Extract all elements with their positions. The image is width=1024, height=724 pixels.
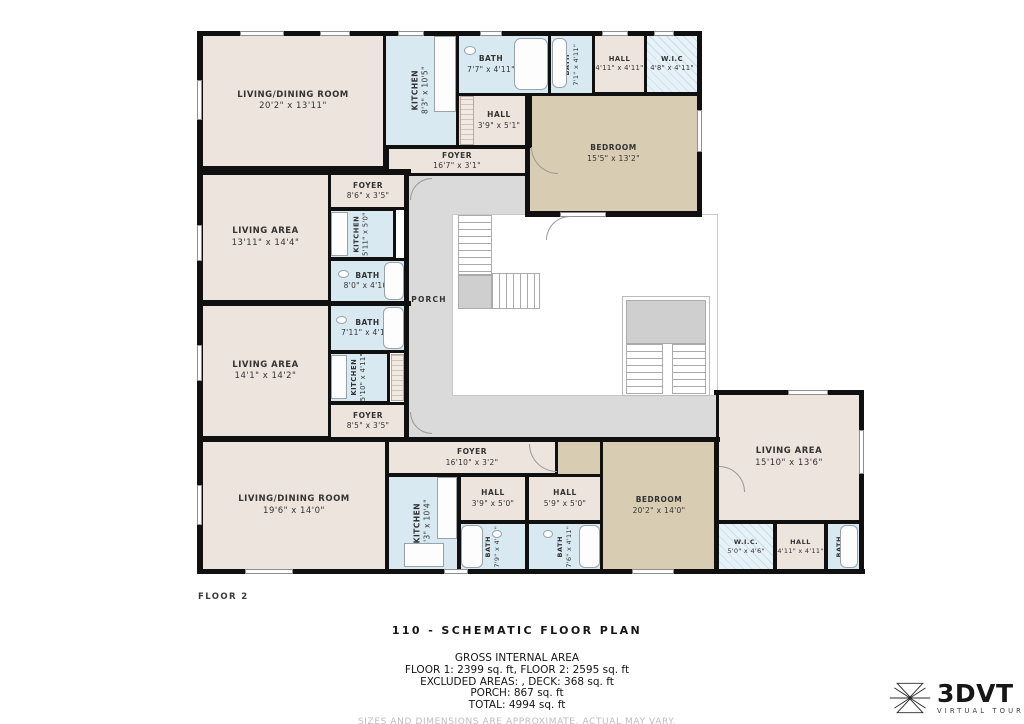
room-dims: 7'1" x 4'11" bbox=[572, 44, 581, 86]
window bbox=[788, 390, 828, 395]
porch-strip-bottom bbox=[452, 394, 718, 439]
wall-block3-top bbox=[197, 437, 720, 442]
room-dims: 7'6" x 4'11" bbox=[565, 526, 574, 568]
window bbox=[602, 31, 628, 36]
room-dims: 5'9" x 5'0" bbox=[544, 499, 587, 509]
room-dims: 3'9" x 5'0" bbox=[472, 499, 515, 509]
wall-bottom bbox=[197, 569, 865, 574]
sink bbox=[492, 530, 502, 538]
sink bbox=[543, 530, 553, 538]
room-dims: 8'3" x 10'5" bbox=[421, 67, 431, 115]
room-living-dining-2: LIVING/DINING ROOM19'6" x 14'0" bbox=[200, 439, 388, 572]
window bbox=[444, 569, 468, 574]
wall-bedroom2-right bbox=[714, 437, 719, 574]
porch-strip-top bbox=[452, 172, 527, 216]
bathtub bbox=[514, 38, 548, 90]
window bbox=[197, 225, 202, 261]
room-bedroom-2-ext bbox=[554, 439, 604, 479]
room-hall-4: HALL5'9" x 5'0" bbox=[526, 474, 604, 523]
room-name: FOYER bbox=[347, 181, 390, 191]
summary-total: TOTAL: 4994 sq. ft bbox=[217, 700, 817, 712]
staircase-2-right-run bbox=[672, 344, 706, 394]
plan-title: 110 - SCHEMATIC FLOOR PLAN bbox=[217, 624, 817, 637]
room-dims: 8'6" x 3'5" bbox=[347, 191, 390, 201]
staircase-2-landing bbox=[626, 300, 706, 344]
wall-bedroom1-left bbox=[525, 95, 530, 217]
floor-plan-page: BEDROOM15'5" x 13'2" LIVING/DINING ROOM2… bbox=[0, 0, 1024, 724]
window bbox=[632, 569, 674, 574]
room-name: LIVING AREA bbox=[755, 446, 823, 457]
window bbox=[654, 31, 674, 36]
window bbox=[480, 31, 502, 36]
logo-tagline: VIRTUAL TOUR bbox=[937, 707, 1024, 715]
room-dims: 15'10" x 13'6" bbox=[755, 458, 823, 469]
room-name: BATH bbox=[467, 54, 515, 64]
room-name: BEDROOM bbox=[633, 495, 686, 505]
room-dims: 5'10" x 4'11" bbox=[359, 353, 368, 401]
closet-shelving bbox=[460, 96, 474, 145]
room-name: FOYER bbox=[433, 151, 481, 161]
room-dims: 5'11" x 5'0" bbox=[362, 212, 371, 256]
staircase-1-landing bbox=[458, 275, 492, 309]
room-dims: 15'5" x 13'2" bbox=[587, 154, 640, 164]
staircase-1-upper-run bbox=[458, 215, 492, 275]
room-name: W.I.C bbox=[650, 55, 694, 64]
wall-block2-top bbox=[197, 169, 411, 174]
room-name: KITCHEN bbox=[413, 499, 423, 547]
room-dims: 16'10" x 3'2" bbox=[446, 458, 499, 468]
brand-logo: 3DVT VIRTUAL TOUR bbox=[888, 678, 1024, 718]
room-dims: 19'6" x 14'0" bbox=[238, 506, 350, 517]
room-name: FOYER bbox=[347, 411, 390, 421]
bathtub bbox=[461, 525, 483, 568]
wall-left-column-right bbox=[404, 169, 409, 442]
window bbox=[197, 485, 202, 525]
room-dims: 7'7" x 4'11" bbox=[467, 65, 515, 75]
staircase-2-left-run bbox=[626, 344, 663, 394]
room-name: W.I.C. bbox=[727, 538, 764, 547]
kitchen-counter bbox=[331, 212, 348, 256]
room-dims: 4'8" x 4'11" bbox=[650, 64, 694, 73]
kitchen-counter bbox=[434, 36, 456, 112]
room-dims: 20'2" x 13'11" bbox=[237, 101, 349, 112]
room-hall-2: HALL4'11" x 4'11" bbox=[592, 33, 647, 95]
room-living-dining-1: LIVING/DINING ROOM20'2" x 13'11" bbox=[200, 33, 386, 169]
room-hall-5: HALL4'11" x 4'11" bbox=[774, 521, 827, 572]
bathtub bbox=[840, 525, 858, 568]
bathtub bbox=[383, 307, 404, 349]
wall-right-lower bbox=[859, 390, 864, 574]
room-dims: 8'3" x 10'4" bbox=[423, 499, 433, 547]
kitchen-counter bbox=[437, 477, 457, 539]
room-name: KITCHEN bbox=[411, 67, 421, 115]
kitchen-counter bbox=[404, 543, 444, 567]
window bbox=[197, 345, 202, 381]
bathtub bbox=[552, 38, 567, 88]
room-living-area-3: LIVING AREA15'10" x 13'6" bbox=[716, 392, 862, 523]
window bbox=[320, 31, 350, 36]
window bbox=[697, 110, 702, 152]
room-living-area-1: LIVING AREA13'11" x 14'4" bbox=[200, 172, 331, 303]
room-name: KITCHEN bbox=[350, 353, 359, 401]
window bbox=[245, 569, 293, 574]
room-name: LIVING AREA bbox=[232, 360, 298, 371]
room-name: LIVING/DINING ROOM bbox=[238, 494, 350, 505]
room-name: HALL bbox=[472, 488, 515, 498]
bathtub bbox=[384, 262, 404, 300]
room-dims: 5'0" x 4'6" bbox=[727, 547, 764, 556]
room-name: LIVING AREA bbox=[232, 226, 300, 237]
3dvt-star-icon bbox=[888, 678, 932, 718]
wall-bedroom1-bottom bbox=[525, 212, 702, 217]
staircase-1-lower-run bbox=[492, 273, 540, 309]
sink bbox=[338, 270, 349, 278]
room-foyer-2: FOYER8'6" x 3'5" bbox=[328, 172, 408, 210]
room-dims: 4'11" x 4'11" bbox=[595, 64, 643, 73]
room-bedroom-2: BEDROOM20'2" x 14'0" bbox=[600, 439, 718, 572]
sink bbox=[464, 46, 476, 55]
room-name: FOYER bbox=[446, 447, 499, 457]
bathtub bbox=[579, 525, 600, 568]
summary-floors: FLOOR 1: 2399 sq. ft, FLOOR 2: 2595 sq. … bbox=[217, 665, 817, 677]
porch-label: PORCH bbox=[402, 295, 456, 304]
room-name: HALL bbox=[595, 55, 643, 64]
window bbox=[197, 80, 202, 120]
room-name: KITCHEN bbox=[353, 212, 362, 256]
room-foyer-3: FOYER8'5" x 3'5" bbox=[328, 402, 408, 440]
room-hall-3: HALL3'9" x 5'0" bbox=[458, 474, 528, 523]
room-dims: 16'7" x 3'1" bbox=[433, 161, 481, 171]
room-dims: 3'9" x 5'1" bbox=[478, 121, 521, 131]
closet-shelving bbox=[391, 354, 404, 401]
room-name: BEDROOM bbox=[587, 143, 640, 153]
porch-strip-vertical bbox=[407, 172, 452, 440]
room-name: HALL bbox=[544, 488, 587, 498]
window bbox=[398, 31, 424, 36]
room-wic-1: W.I.C4'8" x 4'11" bbox=[644, 33, 700, 95]
sink bbox=[336, 316, 347, 324]
room-wic-2: W.I.C.5'0" x 4'6" bbox=[716, 521, 776, 572]
logo-brand-text: 3DVT bbox=[937, 682, 1024, 705]
wall-block2-mid bbox=[197, 301, 411, 306]
room-name: BATH bbox=[556, 526, 565, 568]
caption-block: 110 - SCHEMATIC FLOOR PLAN GROSS INTERNA… bbox=[217, 624, 817, 724]
room-living-area-2: LIVING AREA14'1" x 14'2" bbox=[200, 303, 331, 439]
room-dims: 20'2" x 14'0" bbox=[633, 506, 686, 516]
room-name: HALL bbox=[777, 538, 823, 547]
room-dims: 13'11" x 14'4" bbox=[232, 238, 300, 249]
kitchen-counter bbox=[331, 355, 347, 399]
room-name: HALL bbox=[478, 110, 521, 120]
room-dims: 4'11" x 4'11" bbox=[777, 547, 823, 556]
window bbox=[859, 430, 864, 474]
floor-label: FLOOR 2 bbox=[198, 592, 249, 602]
disclaimer: SIZES AND DIMENSIONS ARE APPROXIMATE, AC… bbox=[217, 717, 817, 724]
room-dims: 8'5" x 3'5" bbox=[347, 421, 390, 431]
window bbox=[240, 31, 284, 36]
room-dims: 14'1" x 14'2" bbox=[232, 371, 298, 382]
room-name: LIVING/DINING ROOM bbox=[237, 90, 349, 101]
